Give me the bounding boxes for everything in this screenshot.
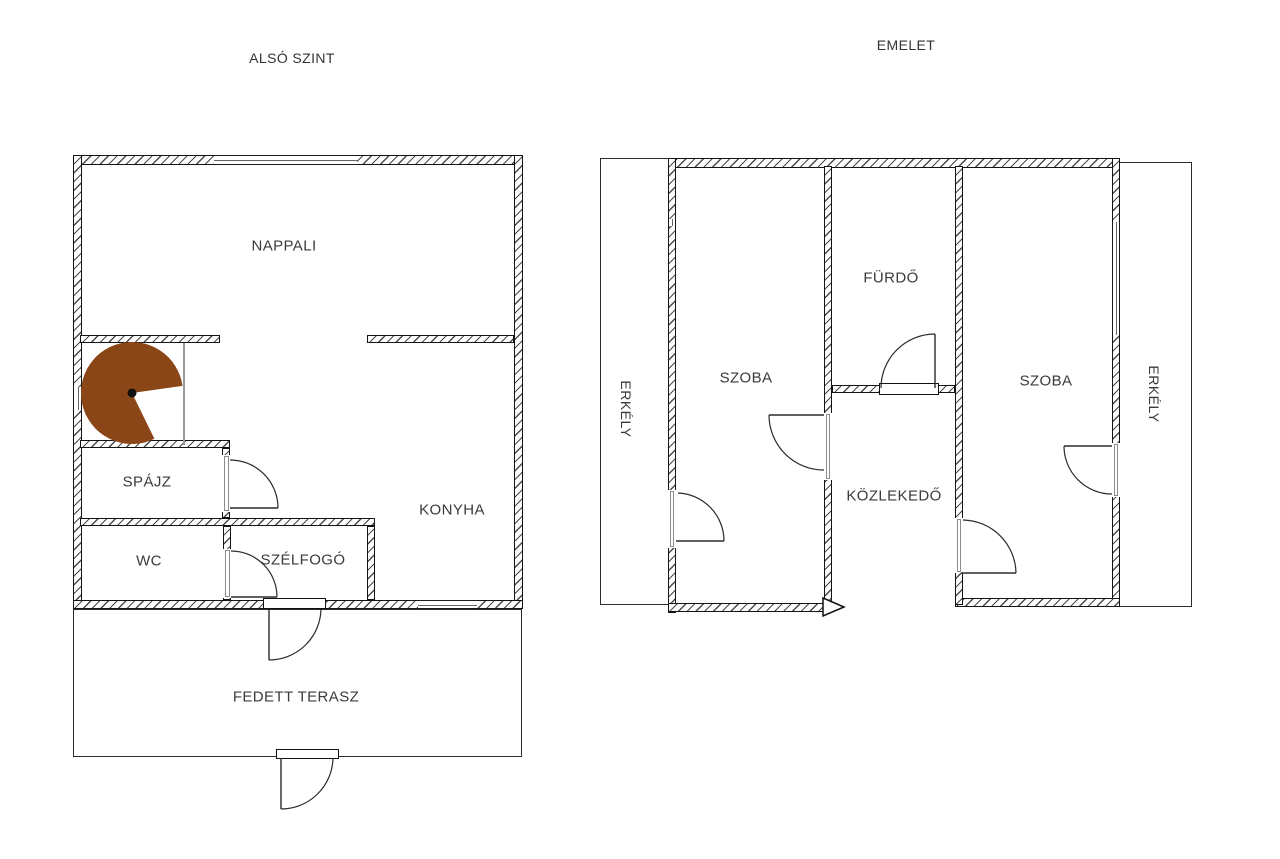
wall-spajz-top [80, 440, 230, 448]
door-spajz [230, 460, 278, 508]
room-label-furdo: FÜRDŐ [863, 270, 918, 287]
room-label-erkely-right: ERKÉLY [1146, 365, 1162, 422]
room-label-konyha: KONYHA [419, 502, 485, 519]
terrace-door-sill [276, 749, 339, 759]
window-szoba-right-balcony [1112, 222, 1120, 335]
window-konyha-bottom [418, 600, 477, 609]
wall-wc-szelfogo-top [80, 518, 375, 526]
room-label-kozlekedo: KÖZLEKEDŐ [846, 488, 941, 505]
door-frame-wc [225, 550, 230, 597]
room-label-nappali: NAPPALI [251, 238, 316, 255]
door-frame-szoba-right [957, 519, 961, 572]
balcony-left-outline [600, 158, 672, 605]
lower-level-title: ALSÓ SZINT [249, 50, 335, 66]
window-nappali-top [214, 155, 357, 165]
upper-level-title: EMELET [877, 37, 935, 53]
door-furdo [881, 334, 935, 388]
room-label-fedett-terasz: FEDETT TERASZ [233, 689, 359, 706]
wall-nappali-divider-right [367, 335, 514, 343]
spiral-staircase-icon [81, 342, 183, 444]
door-szoba-right-hall [961, 520, 1016, 573]
wall-outer-left [73, 155, 82, 609]
wall-szoba-left-right [824, 166, 832, 613]
room-label-spajz: SPÁJZ [123, 474, 172, 491]
wall-szelfogo-right [367, 526, 375, 600]
door-frame-balcony-right [1114, 444, 1118, 496]
room-label-szelfogo: SZÉLFOGÓ [261, 552, 346, 569]
room-label-erkely-left: ERKÉLY [618, 380, 634, 437]
door-frame-balcony-left [670, 491, 674, 547]
floorplan-canvas: ALSÓ SZINT NAPPALI SPÁJZ WC SZÉL [0, 0, 1280, 859]
room-label-wc: WC [136, 553, 162, 570]
wall-upper-top [668, 158, 1120, 168]
wall-upper-bottom-left-room [668, 603, 824, 612]
room-label-szoba-right: SZOBA [1020, 373, 1073, 390]
room-label-szoba-left: SZOBA [720, 370, 773, 387]
terrace-outline [73, 609, 522, 757]
door-frame-szoba-left [826, 414, 830, 479]
stair-enclosure-line [183, 343, 185, 445]
door-szoba-left-balcony [676, 493, 724, 541]
door-frame-spajz [224, 456, 229, 511]
door-szoba-right-balcony [1064, 446, 1112, 494]
window-szoba-left-balcony [668, 219, 676, 226]
entrance-door-sill [263, 598, 326, 609]
furdo-door-sill [879, 383, 939, 395]
wall-outer-right [514, 155, 523, 609]
door-szoba-left-hall [769, 415, 824, 470]
wall-upper-bottom-right-room [955, 598, 1120, 607]
door-terrace [281, 758, 333, 809]
wall-nappali-divider-left [80, 335, 220, 343]
window-stair-left [73, 387, 82, 410]
